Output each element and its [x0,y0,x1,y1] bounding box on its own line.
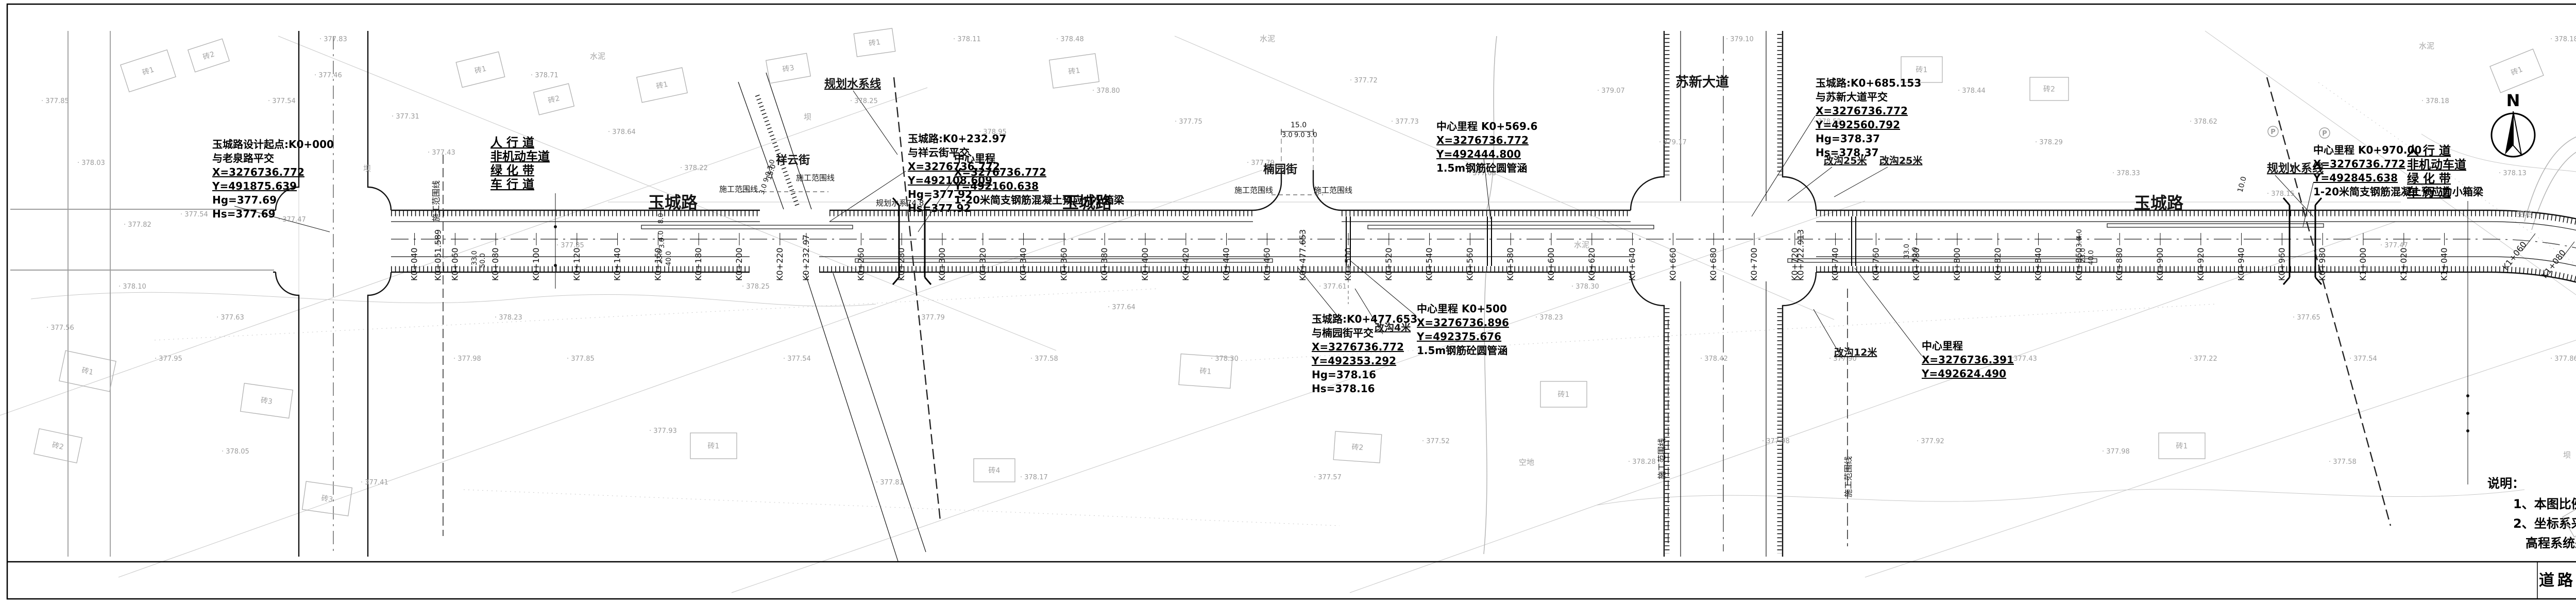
lane-stack-left: 人 行 道非机动车道绿 化 带车 行 道 [490,136,550,191]
culvert-k0749-label-line: X=3276736.391 [1922,354,2014,366]
annotation-label: 施工范围线 [1314,186,1352,195]
laoquan-road-junction [273,31,391,557]
station-label: K0+080 [490,247,500,281]
spot-elevation: · 377.85 [567,355,595,363]
spot-elevation: · 378.17 [1020,474,1048,481]
station-label: K0+220 [775,247,785,281]
spot-elevation: · 377.98 [453,355,481,363]
ground-label: 水泥 [590,52,605,61]
lane-stack-right-line: 非机动车道 [2407,158,2466,172]
annotation-label: 施工范围线 [1843,456,1853,497]
spot-elevation: · 379.10 [1726,36,1754,43]
building-label: 砖1 [141,65,155,77]
culvert-k0749-label-line: Y=492624.490 [1921,367,2006,380]
spot-elevation: · 377.47 [278,216,306,224]
suxin-crossing-line: Hg=378.37 [1816,132,1880,145]
spot-elevation: · 378.25 [742,283,770,291]
building-label: 砖2 [2043,86,2055,94]
building: 砖1 [2490,49,2544,93]
annotation-label: 3.0 [1282,131,1293,139]
spot-elevation: · 378.30 [1571,283,1599,291]
station-label: K0+740 [1831,247,1840,281]
building-label: 砖2 [1351,443,1364,453]
annotation-label: 玉城路 [2134,193,2184,213]
nanyuan-crossing-line: Hs=378.16 [1312,382,1375,395]
culvert-k0569-label: 中心里程 K0+569.6X=3276736.772Y=492444.8001.… [1436,120,1537,174]
building-label: 砖1 [708,442,720,450]
spot-elevation: · 378.33 [2112,170,2140,177]
building-label: 砖2 [547,94,561,105]
spot-elevation: · 378.18 [2550,36,2576,43]
station-label: K0+760 [1871,247,1880,281]
station-label: K0+680 [1708,247,1718,281]
spot-elevation: · 377.58 [1030,355,1058,363]
coordinate-label-blocks: 玉城路设计起点:K0+000与老泉路平交X=3276736.772Y=49187… [212,77,2576,474]
building-label: 砖3 [320,494,333,504]
station-label: K0+560 [1465,247,1475,281]
spot-elevation: · 377.81 [876,479,904,487]
station-label: K0+420 [1181,247,1191,281]
building: 砖1 [456,52,505,87]
station-label: K0+580 [1505,247,1515,281]
building-label: 砖1 [2510,65,2524,77]
parking-symbol: P [2319,128,2330,138]
spot-elevation: · 378.11 [953,36,981,43]
suxin-crossing-line: Hs=378.37 [1816,146,1879,159]
spot-elevation: · 378.18 [2421,97,2449,105]
spot-elevation: · 378.44 [1958,87,1986,95]
station-label: K0+620 [1587,247,1597,281]
annotation-label: 施工范围线 [1657,438,1667,479]
building: 砖2 [34,429,82,463]
north-label: N [2506,91,2520,110]
north-needle [2505,111,2513,155]
spot-elevation: · 377.92 [1917,438,1944,445]
nanyuan-crossing-line: 玉城路:K0+477.653 [1312,313,1417,325]
spot-elevation: · 377.54 [783,355,811,363]
culvert-k0500-label-line: Y=492375.676 [1416,330,1501,343]
spot-elevation: · 377.82 [124,221,151,229]
ground-label: 空地 [1519,458,1534,467]
station-label: K0+100 [531,247,541,281]
station-label: K0+360 [1059,247,1069,281]
spot-elevation: · 377.54 [180,211,208,219]
start-point-line: 与老泉路平交 [212,152,274,164]
lane-stack-right-line: 车 行 道 [2407,186,2451,199]
bridge-1-label-line: X=3276736.772 [954,166,1046,178]
annotation-label: 施工范围线 [796,173,835,182]
building-label: 砖2 [51,441,64,451]
leader-lines [234,91,2576,484]
station-label: K0+960 [2277,247,2286,281]
building-label: 砖1 [81,366,94,377]
lane-stack-left-line: 车 行 道 [490,177,534,191]
building-label: 砖1 [1558,391,1570,399]
spot-elevation: · 378.15 [2267,190,2295,198]
spot-elevation: · 377.31 [392,113,419,121]
spot-elevation: · 378.13 [2499,170,2527,177]
culvert-k0500-label: 中心里程 K0+500X=3276736.896Y=492375.6761.5m… [1416,303,1509,357]
station-label: K0+840 [2033,247,2043,281]
station-label: K0+460 [1262,247,1272,281]
bridge-1-label-line: Y=492160.638 [954,180,1039,192]
chainage-stations: K0+040K0+051.589K0+060K0+080K0+100K0+120… [410,229,2576,485]
annotation-label: 祥云街 [776,154,810,167]
building-label: 砖1 [1199,367,1212,376]
spot-elevation: · 378.28 [1628,458,1656,466]
station-label: K0+722.913 [1795,229,1805,281]
culvert-k0569-label-line: 中心里程 K0+569.6 [1436,120,1537,132]
station-label: K0+520 [1384,247,1394,281]
annotation-label: 50.0 [479,253,487,268]
road-plan-drawing: N 说明： 1、本图比例为1:1000。 2、坐标系采用乐山独立坐标系， 高程系… [0,0,2576,603]
annotation-label: 改沟25米 [1879,155,1923,166]
bridge-1-label-line: 1-20米简支钢筋混凝土预应力小箱梁 [954,194,1125,206]
annotation-label: 33.0 [471,250,479,265]
spot-elevation: · 378.22 [680,164,708,172]
suxin-crossing-line: X=3276736.772 [1816,105,1908,117]
station-label: K0+980 [2317,247,2327,281]
station-label: K0+120 [572,247,582,281]
station-label: K0+440 [1222,247,1231,281]
suxin-crossing-line: Y=492560.792 [1815,119,1900,131]
suxin-crossing-line: 与苏新大道平交 [1816,91,1888,103]
start-point-line: 玉城路设计起点:K0+000 [212,138,334,150]
xiangyun-crossing-line: 玉城路:K0+232.97 [908,132,1006,145]
spot-elevation: · 377.65 [2293,314,2320,322]
building-label: 砖1 [655,80,669,91]
spot-elevation: · 377.63 [216,314,244,322]
spot-elevation: · 378.10 [118,283,146,291]
svg-text:P: P [2322,130,2327,138]
building: 砖3 [241,383,293,418]
start-point-line: X=3276736.772 [212,166,304,178]
note-line-1: 1、本图比例为1:1000。 [2513,497,2576,511]
building-label: 砖1 [1916,66,1928,74]
xiangyun-street [738,73,926,561]
culverts [1346,216,1856,304]
station-label: K0+060 [450,247,460,281]
spot-elevation: · 377.64 [1108,304,1136,311]
station-label: K0+477.653 [1298,229,1308,281]
station-label: K0+880 [2114,247,2124,281]
spot-elevation: · 377.57 [1314,474,1342,481]
spot-elevation: · 377.98 [1762,438,1790,445]
annotation-label: 33.0 [1903,244,1911,259]
building: 砖4 [974,459,1015,482]
building-label: 砖4 [989,467,1001,475]
spot-elevation: · 378.62 [2190,118,2217,126]
building-label: 砖1 [1068,66,1081,76]
annotation-label: 15.0 [1291,121,1307,129]
station-label: K0+600 [1546,247,1556,281]
spot-elevation: · 377.72 [1350,77,1378,85]
parking-symbol: P [2268,126,2278,137]
lane-stack-left-line: 非机动车道 [490,149,550,163]
annotation-label: 3.0 [658,238,666,248]
svg-text:P: P [2270,128,2276,136]
culvert-k0569-label-line: X=3276736.772 [1436,134,1529,146]
spot-elevation: · 378.23 [1535,314,1563,322]
spot-elevation: · 377.52 [1422,438,1450,445]
topo-background [0,31,2576,593]
station-label: K0+940 [2236,247,2246,281]
nanyuan-crossing-line: Y=492353.292 [1311,355,1396,367]
north-arrow: N [2492,91,2535,157]
annotation-label: 规划水系线 [824,77,881,91]
spot-elevation: · 378.64 [608,128,636,136]
suxin-crossing-line: 玉城路:K0+685.153 [1816,77,1921,89]
nanyuan-crossing-line: 与楠园街平交 [1312,327,1374,339]
station-label: K0+700 [1749,247,1759,281]
buildings: 砖1砖2砖1砖2砖3砖1砖2砖1砖3砖1砖1砖2砖1砖1砖2砖1砖1砖1砖3砖1… [34,28,2576,542]
start-point-line: Hg=377.69 [212,194,277,206]
building-label: 砖1 [474,64,487,75]
start-point-line: Hs=377.69 [212,208,276,220]
building-label: 砖1 [2176,442,2188,450]
spot-elevation: · 377.73 [1391,118,1419,126]
ground-label: 坝 [2563,450,2571,460]
station-label: K0+280 [896,247,906,281]
station-label: K1+000 [2358,247,2368,281]
sheet-title: 道路平面总体设计图 [2539,572,2576,590]
building-label: 砖1 [868,38,881,48]
station-label: K1+020 [2399,247,2409,281]
nanyuan-crossing-line: X=3276736.772 [1312,341,1404,353]
parking-symbols: PP [2268,126,2330,138]
building-label: 砖2 [202,50,216,61]
station-label: K0+051.589 [433,229,443,281]
station-label: K0+800 [1952,247,1962,281]
annotation-label: 施工范围线 [719,185,758,194]
annotation-label: 40.0 [665,251,673,266]
bridge-2-label-line: Y=492845.638 [2313,172,2398,184]
station-label: K0+660 [1668,247,1677,281]
spot-elevation: · 378.05 [222,448,249,456]
station-label: K0+300 [937,247,947,281]
spot-elevation: · 377.46 [314,72,342,79]
drawing-sheet: N 说明： 1、本图比例为1:1000。 2、坐标系采用乐山独立坐标系， 高程系… [0,0,2576,603]
building-label: 砖3 [260,396,273,406]
spot-elevation: · 377.86 [2550,355,2576,363]
culvert-k0500-label-line: 中心里程 K0+500 [1417,303,1507,315]
station-label: K0+232.97 [801,234,811,281]
spot-elevation: · 378.71 [531,72,558,79]
start-point-line: Y=491875.639 [212,180,297,192]
station-label: K0+040 [410,247,419,281]
culvert-k0749-label: 中心里程X=3276736.391Y=492624.490 [1921,340,2014,380]
annotation-label: 8.0 [657,213,665,224]
spot-elevation: · 379.07 [1597,87,1625,95]
station-label: K0+500 [1343,247,1353,281]
annotation-label: 改沟12米 [1834,346,1877,358]
station-label: K0+340 [1019,247,1028,281]
annotation-label: 施工范围线 [431,180,441,222]
building: 砖2 [2030,77,2069,100]
building: 砖1 [690,433,737,459]
bridge-2-label-line: X=3276736.772 [2313,158,2405,170]
lane-stack-right-line: 人 行 道 [2407,144,2451,158]
station-label: K0+400 [1140,247,1150,281]
station-label: K1+060 [2500,240,2529,272]
notes-block: 说明： 1、本图比例为1:1000。 2、坐标系采用乐山独立坐标系， 高程系统采… [2487,476,2576,550]
lane-stack-left-line: 绿 化 带 [490,163,534,177]
spot-elevation: · 377.93 [649,427,677,435]
annotation-label: 玉城路 [648,193,698,212]
station-label: K0+640 [1628,247,1637,281]
building: 砖1 [637,68,687,103]
building: 砖3 [766,53,811,83]
lane-stack-left-line: 人 行 道 [490,136,534,149]
annotation-label: 3.0 [1307,131,1317,139]
station-label: K0+200 [734,247,744,281]
lane-stack-right-line: 绿 化 带 [2407,172,2451,186]
ground-label: 水泥 [2419,41,2434,51]
station-label: K0+140 [613,247,622,281]
station-label: K0+900 [2155,247,2165,281]
ground-label: 水泥 [1260,34,1275,43]
station-label: K0+260 [856,247,866,281]
start-point: 玉城路设计起点:K0+000与老泉路平交X=3276736.772Y=49187… [212,138,334,220]
spot-elevation: · 377.22 [2190,355,2217,363]
annotation-label: 苏新大道 [1675,74,1729,90]
existing-roads [10,31,299,557]
spot-elevation: · 377.75 [1175,118,1202,126]
annotation-label: 施工范围线 [1234,186,1273,195]
station-label: K0+180 [693,247,703,281]
nanyuan-crossing: 玉城路:K0+477.653与楠园街平交X=3276736.772Y=49235… [1311,313,1417,395]
station-label: K0+820 [1993,247,2003,281]
spot-elevation: · 377.43 [428,149,455,157]
spot-elevation: · 378.25 [850,97,878,105]
spot-elevation: · 378.03 [77,159,105,167]
spot-elevation: · 377.95 [155,355,182,363]
culvert-k0569-label-line: Y=492444.800 [1436,148,1521,160]
spot-elevation: · 378.80 [1092,87,1120,95]
ground-label: 空地 [2517,209,2532,219]
building: 砖1 [854,28,895,57]
spot-elevation: · 377.56 [46,324,74,332]
building-label: 砖3 [782,64,794,74]
culvert-k0500-label-line: X=3276736.896 [1417,316,1509,329]
station-label: K1+040 [2439,247,2449,281]
station-label: K0+380 [1099,247,1109,281]
station-label: K0+320 [978,247,988,281]
building: 砖2 [188,39,229,72]
spot-elevation: · 377.58 [2329,458,2357,466]
building: 砖1 [2159,433,2205,459]
station-label: K0+920 [2196,247,2206,281]
spot-elevation: · 377.54 [2349,355,2377,363]
spot-elevation: · 377.85 [41,97,69,105]
ground-label: 坝 [363,164,371,173]
spot-elevation: · 378.29 [2035,139,2063,146]
building: 砖2 [534,83,574,115]
annotation-label: 9.0 [1294,131,1305,139]
spot-elevation: · 378.23 [495,314,522,322]
sheet-frame: 道路平面总体设计图 [7,4,2576,599]
nanyuan-crossing-line: Hg=378.16 [1312,368,1376,381]
culvert-k0500-label-line: 1.5m钢筋砼圆管涵 [1417,344,1507,357]
spot-elevation: · 378.42 [1700,355,1728,363]
bridge-2-label-line: 1-20米简支钢筋混凝土预应力小箱梁 [2313,186,2484,198]
annotation-label: 23.0 [2079,248,2087,263]
spot-elevation: · 377.41 [361,479,388,487]
annotation-label: 40.0 [2088,250,2095,265]
spot-elevation: · 377.79 [917,314,945,322]
station-label: K0+540 [1425,247,1434,281]
building: 砖1 [121,50,176,92]
ground-label: 坝 [804,112,811,122]
spot-elevation: · 377.61 [1319,283,1347,291]
spot-elevation: · 377.54 [268,97,296,105]
annotation-label: 50.0 [1911,247,1919,262]
culvert-k0749-label-line: 中心里程 [1922,340,1963,352]
spot-elevation: · 377.98 [2102,448,2130,456]
building: 砖2 [1333,431,1382,463]
annotation-label: 楠园街 [1263,163,1297,176]
bridge-1-label-line: 中心里程 [954,152,995,164]
building: 砖3 [302,481,352,516]
bridge-2-label-line: 中心里程 K0+970.00 [2313,144,2421,156]
building: 砖1 [1540,381,1587,407]
spot-elevation: · 378.48 [1056,36,1084,43]
building: 砖1 [1049,54,1099,88]
annotation-label: 10.0 [2236,176,2248,193]
spot-elevation: · 377.83 [319,36,347,43]
annotation-label: 3.0 [2076,237,2083,247]
notes-heading: 说明： [2487,476,2524,491]
culvert-k0569-label-line: 1.5m钢筋砼圆管涵 [1436,162,1527,174]
note-line-3: 高程系统采用1985国家高程基准。 [2526,536,2576,550]
spot-elevation: · 379.17 [1659,139,1687,146]
annotation-label: 23.0 [656,249,664,264]
